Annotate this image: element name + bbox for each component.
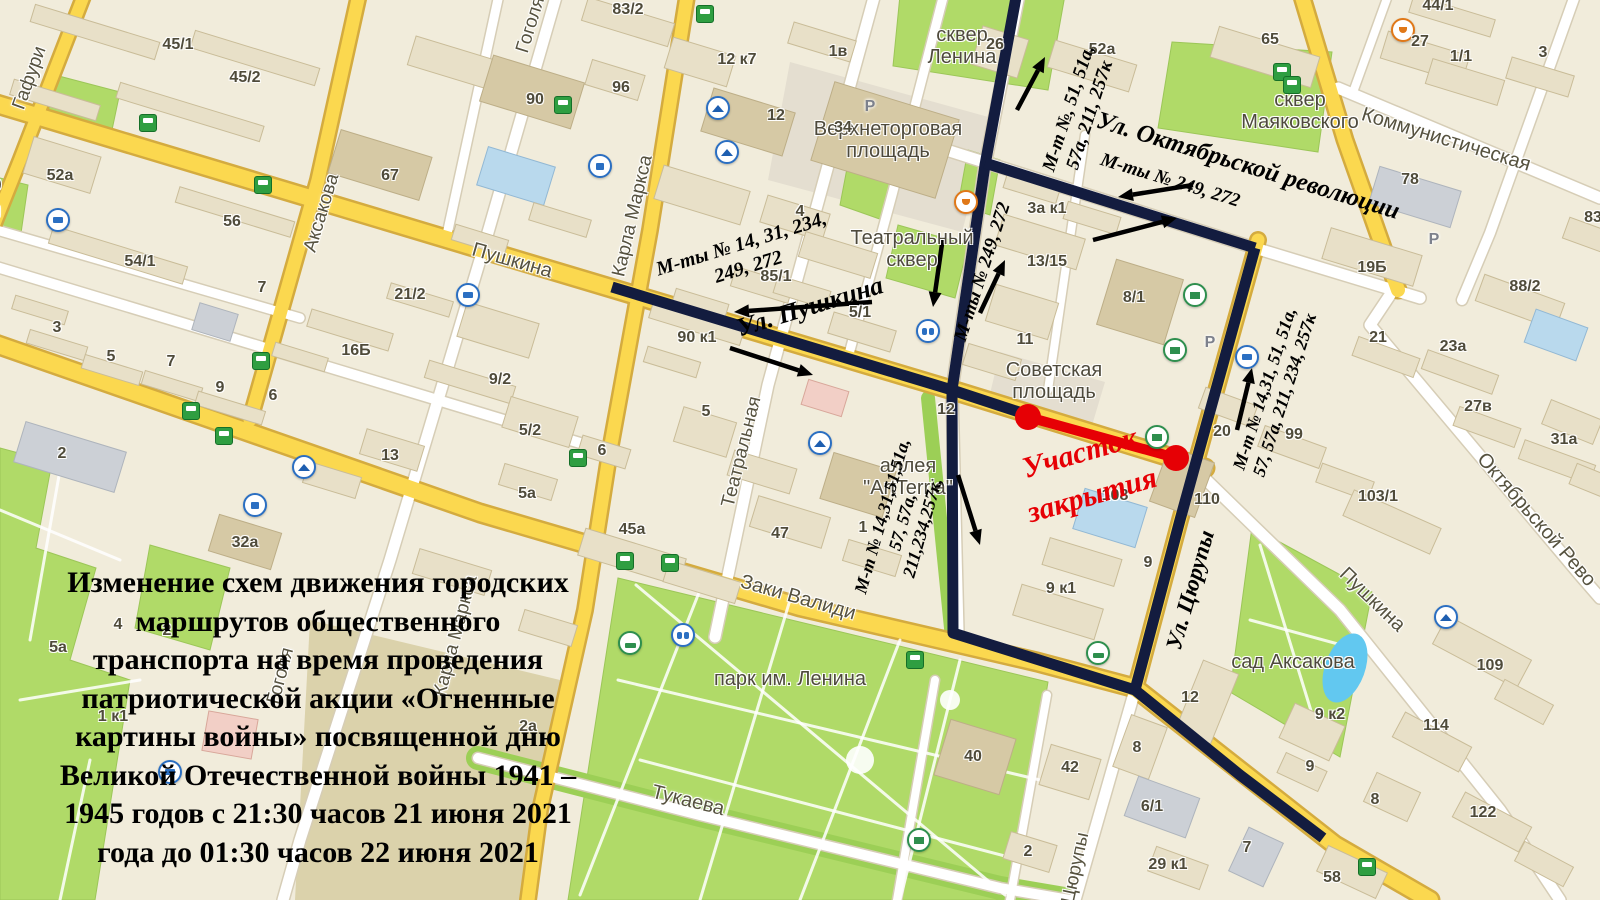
city-map: PPP ГафуриГафуриАксаковаГоголяКарла Марк… [0,0,1600,900]
notice-line: картины войны» посвященной дню [8,718,628,757]
notice-line: Великой Отечественной войны 1941 – [8,757,628,796]
notice-line: 1945 годов с 21:30 часов 21 июня 2021 [8,795,628,834]
notice-line: маршрутов общественного [8,603,628,642]
notice-line: патриотической акции «Огненные [8,680,628,719]
notice-line: транспорта на время проведения [8,641,628,680]
notice-line: Изменение схем движения городских [8,564,628,603]
notice-text-block: Изменение схем движения городскихмаршрут… [8,564,628,872]
notice-line: года до 01:30 часов 22 июня 2021 [8,834,628,873]
